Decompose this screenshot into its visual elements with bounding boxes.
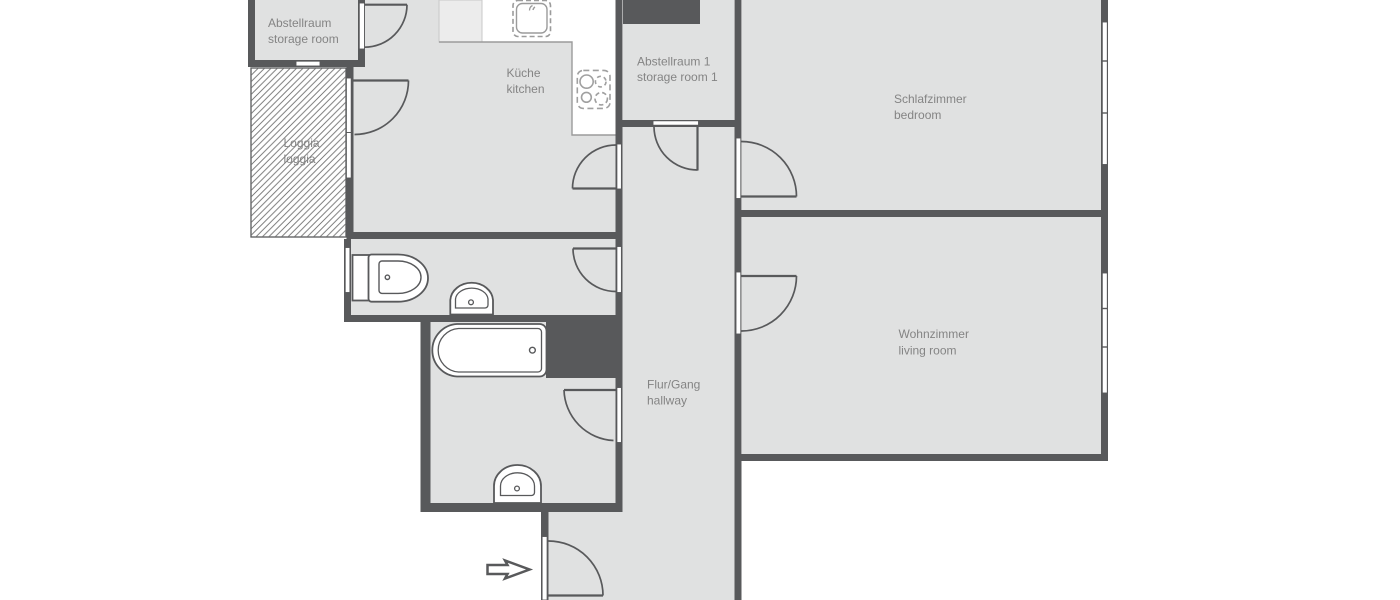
svg-text:Wohnzimmer: Wohnzimmer xyxy=(899,327,969,341)
svg-text:bedroom: bedroom xyxy=(894,108,941,122)
svg-text:Küche: Küche xyxy=(507,66,541,80)
svg-text:hallway: hallway xyxy=(647,394,687,408)
svg-text:storage room 1: storage room 1 xyxy=(637,70,718,84)
svg-text:Flur/Gang: Flur/Gang xyxy=(647,378,700,392)
svg-text:Schlafzimmer: Schlafzimmer xyxy=(894,92,967,106)
svg-text:storage room: storage room xyxy=(268,32,339,46)
svg-text:living room: living room xyxy=(899,344,957,358)
svg-text:Abstellraum: Abstellraum xyxy=(268,16,331,30)
svg-text:loggia: loggia xyxy=(284,152,316,166)
svg-text:Abstellraum 1: Abstellraum 1 xyxy=(637,55,711,69)
svg-text:Loggia: Loggia xyxy=(284,136,320,150)
svg-text:kitchen: kitchen xyxy=(507,82,545,96)
